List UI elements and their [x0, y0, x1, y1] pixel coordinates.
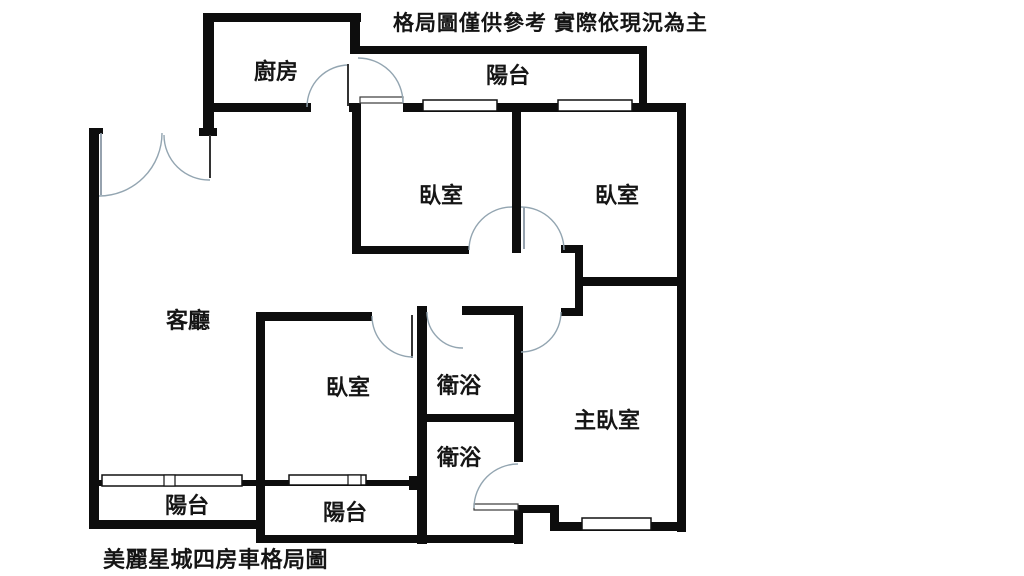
wall-bathroom-left: [417, 306, 427, 544]
doors: [99, 58, 564, 510]
balcony-door-arc: [358, 58, 403, 103]
wall-left-outer: [89, 128, 99, 528]
wall-bathroom-right-upper: [514, 306, 523, 462]
wall-balcony-right: [639, 46, 647, 108]
plan-caption: 美麗星城四房車格局圖: [103, 547, 328, 572]
window-bedroom3-balcony-mullion: [348, 475, 361, 485]
room-label-balcony-bottom-left: 陽台: [165, 493, 209, 518]
master-door-arc: [521, 312, 561, 352]
room-label-living-room: 客廳: [166, 308, 210, 333]
balcony-door-leaf: [360, 97, 403, 103]
wall-bedroom2-bottom: [575, 277, 684, 286]
bedroom2-door-arc: [521, 207, 564, 250]
bathroom2-door-leaf: [474, 504, 518, 510]
wall-bathroom-mid: [417, 414, 523, 422]
bedroom1-door-arc: [469, 207, 512, 250]
wall-kitchen-bottom: [203, 103, 311, 112]
wall-bedroom3-left: [256, 312, 265, 543]
wall-bedroom-divider: [512, 103, 521, 253]
room-label-bathroom2: 衛浴: [436, 445, 482, 470]
window-master-bottom: [582, 518, 651, 530]
room-label-kitchen: 廚房: [254, 59, 298, 84]
entry-door-arc-left: [99, 133, 162, 196]
bedroom3-door-arc: [372, 316, 413, 357]
floor-plan-canvas: 格局圖僅供參考 實際依現況為主 廚房 陽台 臥室 臥室 客廳 臥室 衛浴 衛浴 …: [0, 0, 1024, 576]
wall-hall-stub: [561, 308, 581, 316]
window-bedroom2-balcony: [558, 100, 632, 111]
wall-kitchen-top: [203, 13, 361, 22]
bathroom2-door-arc: [474, 464, 518, 508]
room-label-bedroom2: 臥室: [595, 183, 639, 208]
disclaimer-text: 格局圖僅供參考 實際依現況為主: [393, 11, 708, 35]
bathroom1-door-arc: [427, 312, 463, 348]
room-label-master-bedroom: 主臥室: [574, 408, 640, 433]
wall-right-outer: [677, 103, 686, 532]
room-label-bedroom3: 臥室: [326, 375, 370, 400]
room-labels: 格局圖僅供參考 實際依現況為主 廚房 陽台 臥室 臥室 客廳 臥室 衛浴 衛浴 …: [103, 11, 708, 572]
wall-bedroom3-top: [256, 312, 372, 321]
wall-bedroom1-left: [352, 103, 361, 254]
wall-kitchen-left: [203, 13, 214, 135]
entry-door-arc-right: [164, 135, 210, 180]
wall-bathroom-top: [462, 306, 523, 315]
room-label-balcony-bottom-center: 陽台: [323, 500, 367, 525]
room-label-balcony-top: 陽台: [486, 63, 530, 88]
wall-bedroom3-bath-junction: [409, 476, 420, 490]
wall-balcony-top: [350, 46, 647, 54]
floor-plan-drawing: 格局圖僅供參考 實際依現況為主 廚房 陽台 臥室 臥室 客廳 臥室 衛浴 衛浴 …: [0, 0, 1024, 576]
room-label-bathroom1: 衛浴: [436, 373, 482, 398]
kitchen-door-arc: [307, 65, 349, 107]
wall-balcony-bc-bottom: [256, 535, 523, 543]
wall-kitchen-left-foot: [199, 128, 217, 136]
wall-balcony-bl-bottom: [89, 520, 262, 529]
window-bedroom1-balcony: [423, 100, 497, 111]
room-label-bedroom1: 臥室: [419, 183, 463, 208]
wall-bedroom1-bottom: [352, 246, 469, 254]
walls: [89, 13, 686, 544]
window-living-balcony-mullion: [164, 475, 175, 486]
